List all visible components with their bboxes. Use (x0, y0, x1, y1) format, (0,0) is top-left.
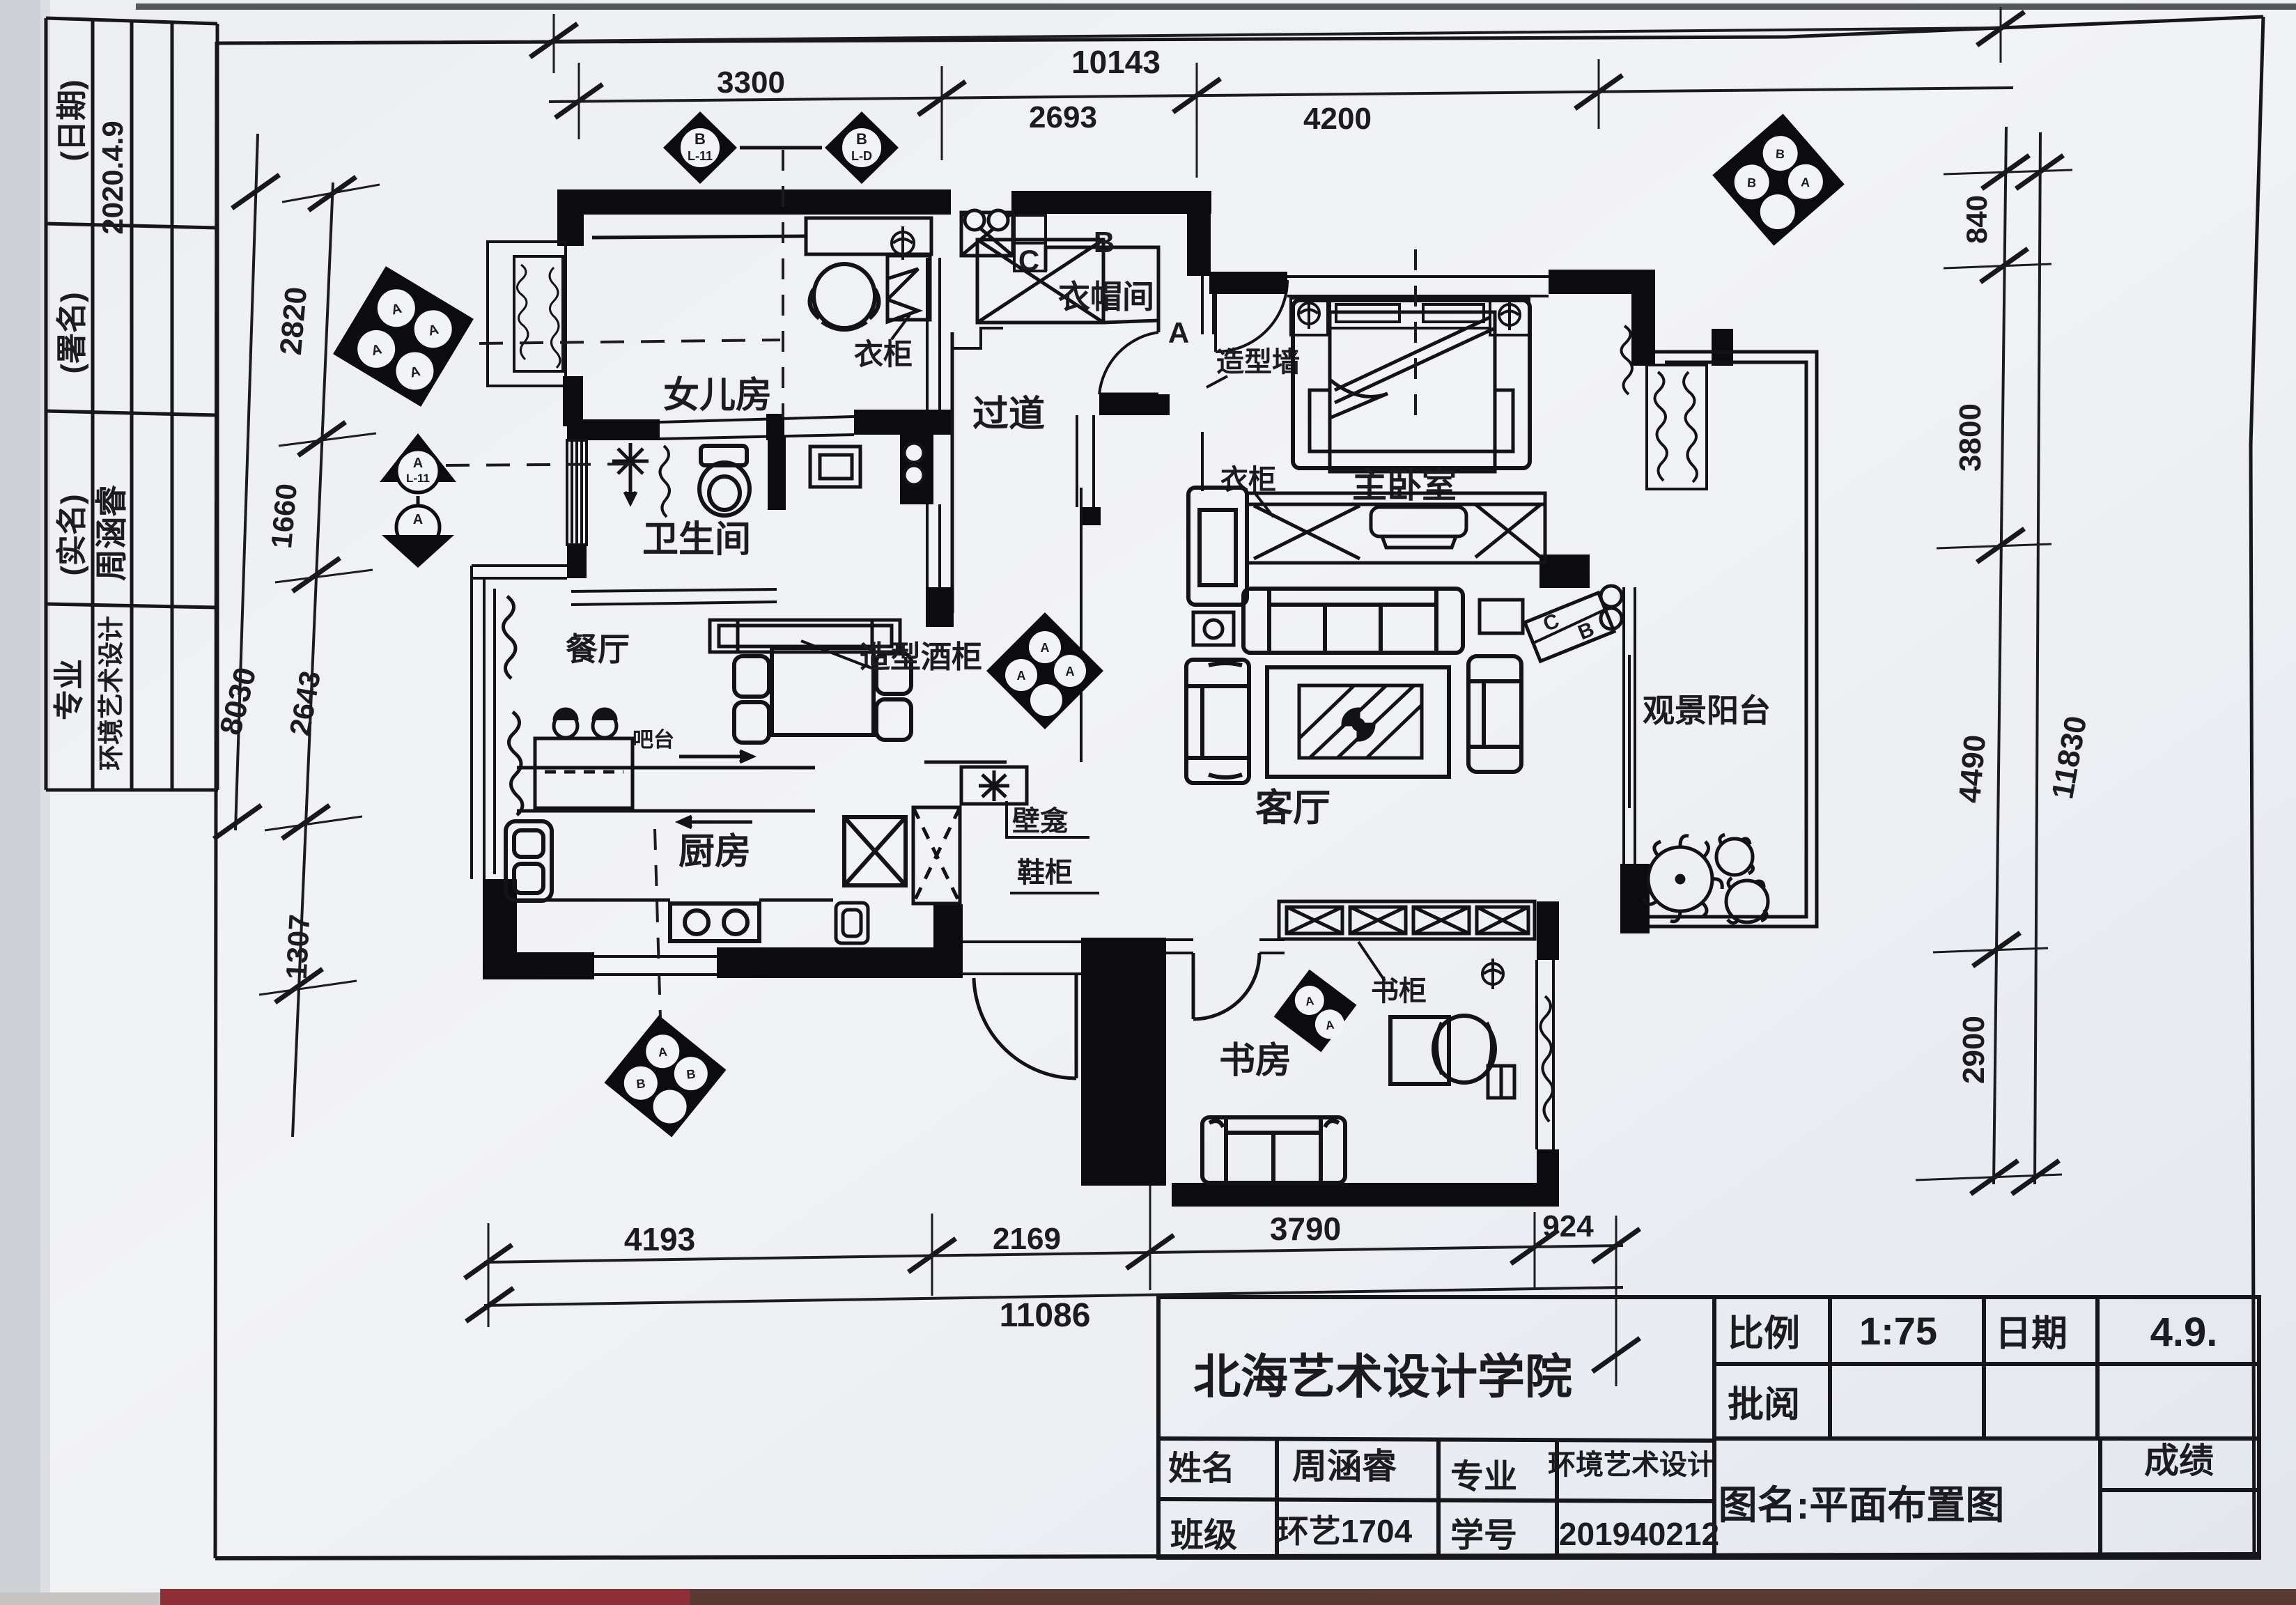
svg-text:4490: 4490 (1953, 734, 1992, 805)
svg-text:批阅: 批阅 (1728, 1385, 1800, 1425)
svg-text:观景阳台: 观景阳台 (1643, 692, 1771, 729)
svg-text:周涵睿: 周涵睿 (1292, 1447, 1397, 1486)
svg-text:主卧室: 主卧室 (1352, 466, 1457, 505)
svg-text:壁龛: 壁龛 (1012, 806, 1069, 837)
svg-text:A: A (1325, 1018, 1335, 1033)
svg-text:924: 924 (1542, 1209, 1594, 1243)
svg-text:4.9.: 4.9. (2150, 1310, 2218, 1355)
svg-text:成绩: 成绩 (2144, 1441, 2214, 1480)
svg-text:B: B (1775, 147, 1785, 162)
svg-text:4200: 4200 (1303, 102, 1372, 136)
svg-text:A: A (1305, 994, 1315, 1009)
svg-text:A: A (658, 1045, 668, 1060)
svg-text:厨房: 厨房 (678, 832, 751, 872)
svg-text:(实名): (实名) (55, 494, 89, 575)
svg-text:1:75: 1:75 (1859, 1309, 1937, 1353)
svg-text:造型酒柜: 造型酒柜 (860, 640, 982, 674)
svg-text:2900: 2900 (1957, 1016, 1991, 1084)
svg-text:B: B (695, 130, 706, 148)
svg-text:环艺1704: 环艺1704 (1277, 1513, 1413, 1549)
svg-text:2020.4.9: 2020.4.9 (96, 121, 129, 235)
svg-text:造型墙: 造型墙 (1216, 347, 1300, 378)
svg-text:书柜: 书柜 (1371, 976, 1427, 1007)
svg-text:书房: 书房 (1219, 1041, 1291, 1081)
svg-text:2693: 2693 (1029, 100, 1097, 134)
svg-text:图名:平面布置图: 图名:平面布置图 (1719, 1483, 2005, 1527)
svg-text:B: B (1094, 226, 1115, 258)
svg-text:专业: 专业 (52, 659, 86, 720)
svg-text:班级: 班级 (1170, 1517, 1237, 1554)
svg-text:2820: 2820 (274, 286, 313, 357)
svg-text:L-D: L-D (851, 149, 872, 163)
svg-text:日期: 日期 (1995, 1314, 2068, 1354)
svg-text:比例: 比例 (1728, 1314, 1800, 1354)
svg-text:L-11: L-11 (406, 472, 430, 485)
svg-text:2169: 2169 (993, 1222, 1061, 1256)
svg-text:环境艺术设计: 环境艺术设计 (97, 616, 125, 770)
svg-text:吧台: 吧台 (633, 728, 674, 752)
svg-text:衣柜: 衣柜 (1220, 465, 1276, 495)
svg-text:姓名: 姓名 (1168, 1450, 1235, 1487)
svg-text:鞋柜: 鞋柜 (1017, 858, 1073, 888)
svg-text:1307: 1307 (280, 913, 316, 980)
svg-text:女儿房: 女儿房 (663, 375, 772, 416)
svg-text:B: B (856, 130, 867, 148)
svg-text:北海艺术设计学院: 北海艺术设计学院 (1193, 1351, 1572, 1404)
svg-text:A: A (1066, 665, 1075, 679)
svg-text:1660: 1660 (265, 482, 303, 550)
svg-text:4193: 4193 (624, 1221, 695, 1257)
svg-text:10143: 10143 (1071, 44, 1161, 80)
svg-text:B: B (635, 1076, 646, 1091)
svg-text:B: B (1746, 176, 1756, 190)
svg-text:A: A (1041, 641, 1050, 655)
svg-text:衣柜: 衣柜 (854, 338, 913, 371)
svg-text:客厅: 客厅 (1255, 787, 1331, 829)
svg-text:餐厅: 餐厅 (566, 631, 630, 667)
svg-text:3800: 3800 (1953, 403, 1987, 472)
svg-text:201940212: 201940212 (1559, 1516, 1719, 1552)
svg-text:11086: 11086 (1000, 1297, 1091, 1334)
svg-text:A: A (413, 512, 423, 527)
svg-text:A: A (413, 456, 423, 471)
svg-text:卫生间: 卫生间 (642, 520, 751, 560)
svg-text:840: 840 (1960, 195, 1993, 244)
svg-text:(日期): (日期) (55, 79, 89, 161)
svg-text:C: C (1018, 244, 1039, 277)
svg-text:A: A (1168, 316, 1189, 349)
svg-text:学号: 学号 (1450, 1517, 1517, 1554)
svg-text:L-11: L-11 (688, 149, 713, 163)
svg-text:周涵睿: 周涵睿 (93, 484, 130, 581)
svg-text:专业: 专业 (1450, 1459, 1517, 1496)
svg-text:过道: 过道 (972, 394, 1045, 435)
svg-text:衣帽间: 衣帽间 (1058, 279, 1154, 315)
svg-text:3300: 3300 (717, 65, 785, 100)
svg-text:B: B (685, 1067, 696, 1082)
svg-text:3790: 3790 (1270, 1211, 1341, 1247)
svg-text:A: A (1017, 669, 1026, 683)
svg-text:(署名): (署名) (55, 292, 89, 373)
svg-text:环境艺术设计: 环境艺术设计 (1548, 1450, 1715, 1480)
svg-text:A: A (1801, 175, 1810, 189)
